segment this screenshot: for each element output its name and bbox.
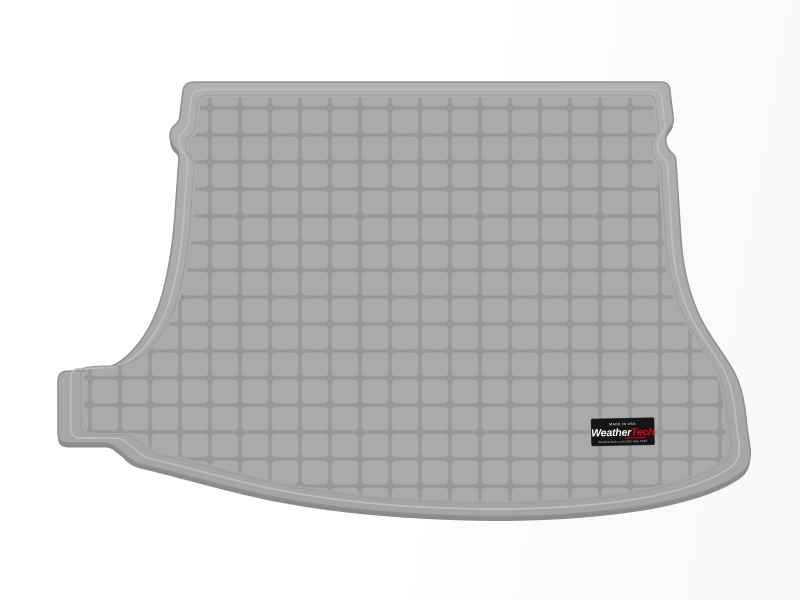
weathertech-badge: MADE IN USA WeatherTech weathertech.com … — [591, 418, 655, 446]
product-photo: MADE IN USA WeatherTech weathertech.com … — [0, 0, 800, 600]
cargo-liner-graphic: MADE IN USA WeatherTech weathertech.com … — [0, 0, 800, 600]
badge-brand-tech: Tech — [631, 426, 655, 438]
